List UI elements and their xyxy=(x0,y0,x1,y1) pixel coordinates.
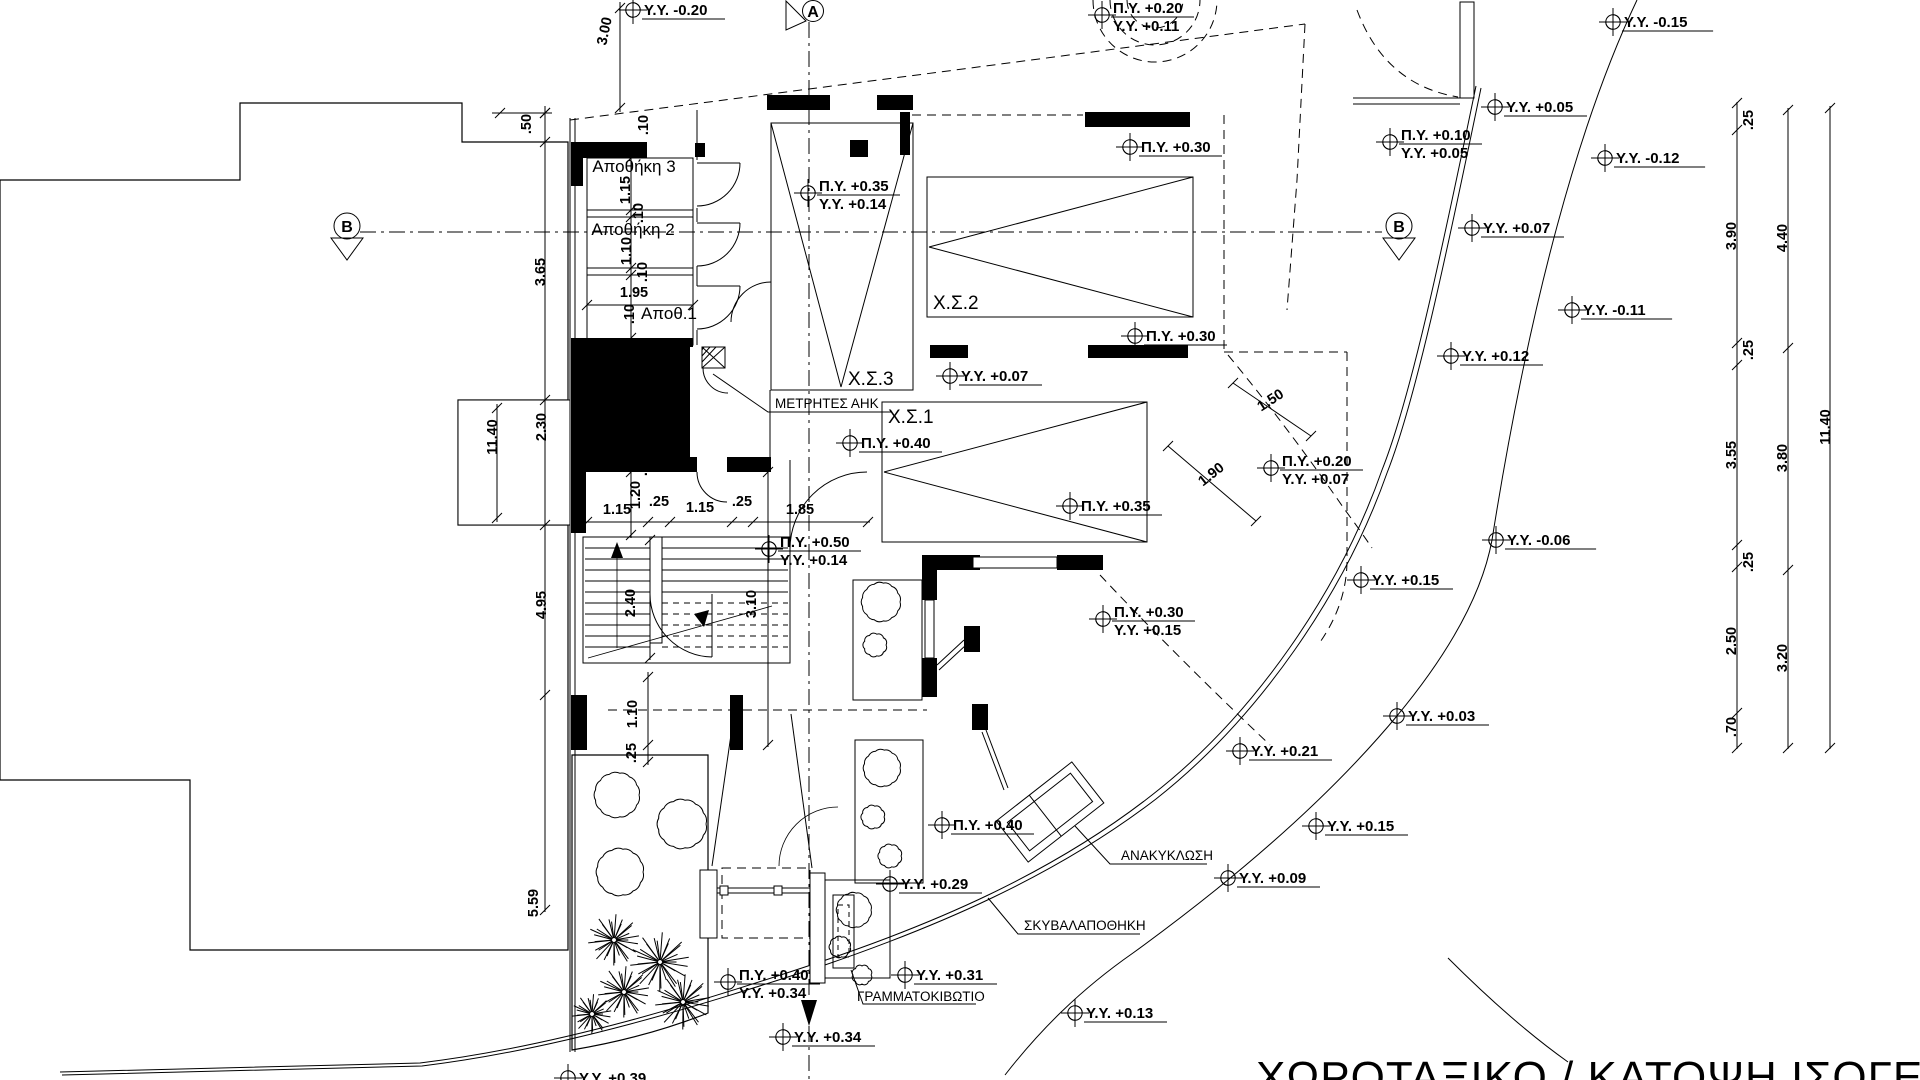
dimension-label: 11.40 xyxy=(1818,409,1834,445)
entrance-area xyxy=(700,374,1207,1004)
annotation-label: ΑΝΑΚΥΚΛΩΣΗ xyxy=(1121,848,1213,863)
elevation-value: Υ.Υ. +0.13 xyxy=(1086,1005,1153,1022)
grass-icon xyxy=(588,914,639,965)
elevation-value: Υ.Υ. +0.11 xyxy=(1113,18,1179,35)
dimension-label: 1.80 xyxy=(622,416,638,444)
elevation-value: Υ.Υ. -0.11 xyxy=(1583,302,1646,319)
elevation-marker: Υ.Υ. -0.15 xyxy=(1599,8,1713,36)
dimension-label: 3.65 xyxy=(533,258,549,286)
dimension-label: 1.10 xyxy=(619,237,635,265)
elevation-value: Υ.Υ. +0.21 xyxy=(1251,743,1318,760)
elevation-value: Π.Υ. +0.30 xyxy=(1146,328,1216,345)
elevation-value: Π.Υ. +0.40 xyxy=(861,435,931,452)
elevation-marker: Υ.Υ. +0.34 xyxy=(769,1023,875,1051)
dimension-label: 11.40 xyxy=(485,419,501,455)
elevation-value: Υ.Υ. +0.15 xyxy=(1327,818,1394,835)
grass-icon xyxy=(655,974,710,1029)
elevation-value: Υ.Υ. +0.05 xyxy=(1506,99,1573,116)
room-label: Χ.Σ.1 xyxy=(888,407,934,428)
step-dashed-1 xyxy=(1100,575,1270,745)
elevation-value: Υ.Υ. +0.07 xyxy=(961,368,1028,385)
dimension-label: 1.50 xyxy=(1255,386,1287,415)
planter-1 xyxy=(853,580,922,700)
elevation-value: Υ.Υ. +0.07 xyxy=(1483,220,1550,237)
elevation-marker: Π.Υ. +0.30Υ.Υ. +0.15 xyxy=(1089,604,1195,639)
dimension-label: 5.59 xyxy=(526,889,542,917)
elevation-value: Υ.Υ. +0.14 xyxy=(780,552,848,569)
room-label: Χ.Σ.2 xyxy=(933,293,979,314)
elevation-marker: Π.Υ. +0.30 xyxy=(1116,133,1222,161)
dimension-label: .25 xyxy=(1741,110,1757,130)
room-label: Αποθ.1 xyxy=(641,304,697,323)
tree-icon xyxy=(829,936,851,958)
elevation-value: Υ.Υ. +0.29 xyxy=(901,876,968,893)
elevation-value: Υ.Υ. +0.09 xyxy=(1239,870,1306,887)
elevation-value: Π.Υ. +0.35 xyxy=(819,178,889,195)
section-letter: A xyxy=(807,4,819,21)
elevation-value: Υ.Υ. +0.15 xyxy=(1114,622,1181,639)
dimension-label: .25 xyxy=(1741,340,1757,360)
dimension-label: .25 xyxy=(624,743,640,763)
meter-closet xyxy=(702,347,725,368)
elevation-marker: Υ.Υ. -0.06 xyxy=(1482,526,1596,554)
elevation-marker: Υ.Υ. +0.09 xyxy=(1214,864,1320,892)
dimension-label: 1.80 xyxy=(624,365,652,381)
elevation-value: Υ.Υ. +0.34 xyxy=(794,1029,862,1046)
elevation-marker: Υ.Υ. +0.15 xyxy=(1302,812,1408,840)
dimension-label: 2.40 xyxy=(623,589,639,617)
elevation-marker: Υ.Υ. +0.12 xyxy=(1437,342,1543,370)
dashed-boundaries xyxy=(570,24,1372,938)
elevation-marker: Π.Υ. +0.40 xyxy=(928,811,1034,839)
dimension-label: .10 xyxy=(636,115,652,135)
dimension-label: 1.85 xyxy=(786,502,814,518)
elevation-value: Π.Υ. +0.30 xyxy=(1141,139,1211,156)
elevation-value: Π.Υ. +0.20 xyxy=(1282,453,1352,470)
dimension-label: 1.90 xyxy=(1195,460,1227,490)
elevation-value: Π.Υ. +0.35 xyxy=(1081,498,1151,515)
dimension-label: .25 xyxy=(635,456,651,476)
elevation-marker: Υ.Υ. +0.03 xyxy=(1383,702,1489,730)
elevation-value: Υ.Υ. -0.15 xyxy=(1624,14,1687,31)
elevation-value: Υ.Υ. +0.34 xyxy=(739,985,807,1002)
elevation-value: Π.Υ. +0.30 xyxy=(1114,604,1184,621)
tree-icon xyxy=(861,805,885,829)
room-label: Αποθήκη 3 xyxy=(592,157,675,176)
dimension-label: .25 xyxy=(649,494,669,510)
room-label: Αποθήκη 2 xyxy=(591,220,674,239)
dimension-label: .10 xyxy=(635,262,651,282)
step-dashed-2 xyxy=(1228,355,1372,548)
dimension-label: .25 xyxy=(732,494,752,510)
dimension-label: .25 xyxy=(1741,552,1757,572)
dimension-label: .50 xyxy=(519,114,535,134)
elevation-value: Υ.Υ. +0.31 xyxy=(916,967,983,984)
dimension-label: 3.55 xyxy=(1724,441,1740,469)
annotation-label: ΣΚΥΒΑΛΑΠΟΘΗΚΗ xyxy=(1024,918,1146,933)
grass-icon xyxy=(572,994,611,1033)
elevation-marker: Π.Υ. +0.20Υ.Υ. +0.11 xyxy=(1088,0,1194,35)
dimension-label: .10 xyxy=(622,304,638,324)
elevation-value: Υ.Υ. +0.05 xyxy=(1401,145,1468,162)
dimension-box xyxy=(458,400,570,525)
dimension-label: 3.00 xyxy=(594,16,616,47)
section-marker: A xyxy=(786,1,824,31)
tree-icon xyxy=(657,799,706,849)
elevation-value: Υ.Υ. -0.20 xyxy=(644,2,707,19)
section-marker: B xyxy=(1383,213,1415,260)
elevation-marker: Υ.Υ. +0.07 xyxy=(1458,214,1564,242)
elevation-marker: Π.Υ. +0.10Υ.Υ. +0.05 xyxy=(1376,127,1482,162)
planter-2 xyxy=(855,740,923,883)
elevation-marker: Υ.Υ. +0.13 xyxy=(1061,999,1167,1027)
elevation-marker: Π.Υ. +0.40Υ.Υ. +0.34 xyxy=(714,967,820,1002)
tree-icon xyxy=(878,844,902,868)
dimension-label: 4.40 xyxy=(1775,224,1791,252)
gate-post-left xyxy=(700,870,717,938)
tree-icon xyxy=(594,772,639,818)
floor-plan-canvas: ABB Υ.Υ. -0.20Π.Υ. +0.20Υ.Υ. +0.11Υ.Υ. -… xyxy=(0,0,1920,1080)
elevation-value: Υ.Υ. +0.07 xyxy=(1282,471,1349,488)
elevation-marker: Υ.Υ. +0.31 xyxy=(891,961,997,989)
elevation-marker: Υ.Υ. -0.11 xyxy=(1558,296,1672,324)
dimension-label: 3.90 xyxy=(1724,222,1740,250)
dimension-label: 3.20 xyxy=(1775,644,1791,672)
elevation-marker: Π.Υ. +0.35Υ.Υ. +0.14 xyxy=(794,178,900,213)
elevation-value: Π.Υ. +0.50 xyxy=(780,534,850,551)
elevation-marker: Υ.Υ. +0.21 xyxy=(1226,737,1332,765)
dimension-label: 4.95 xyxy=(534,591,550,619)
gate-post-right xyxy=(810,873,825,983)
elevation-marker: Π.Υ. +0.20Υ.Υ. +0.07 xyxy=(1257,453,1363,488)
elevation-value: Υ.Υ. +0.15 xyxy=(1372,572,1439,589)
dimension-label: 1.15 xyxy=(603,502,631,518)
room-label: ΜΕΤΡΗΤΕΣ ΑΗΚ xyxy=(775,396,879,411)
elevation-value: Υ.Υ. -0.06 xyxy=(1507,532,1570,549)
elevation-value: Υ.Υ. +0.12 xyxy=(1462,348,1529,365)
elevation-marker: Υ.Υ. +0.07 xyxy=(936,362,1042,390)
elevation-value: Π.Υ. +0.40 xyxy=(739,967,809,984)
dimension-label: 2.50 xyxy=(1724,627,1740,655)
elevation-value: Π.Υ. +0.40 xyxy=(953,817,1023,834)
elevation-marker: Π.Υ. +0.50Υ.Υ. +0.14 xyxy=(755,534,861,569)
tree-icon xyxy=(863,633,887,657)
elevation-value: Π.Υ. +0.10 xyxy=(1401,127,1471,144)
elevation-value: Υ.Υ. +0.39 xyxy=(579,1070,646,1080)
elevation-marker: Υ.Υ. +0.05 xyxy=(1481,93,1587,121)
section-markers: ABB xyxy=(331,1,1415,261)
section-marker: B xyxy=(331,213,363,260)
dimension-label: 3.80 xyxy=(1775,444,1791,472)
elevation-marker: Υ.Υ. +0.29 xyxy=(876,870,982,898)
ramp-strip xyxy=(1460,2,1474,98)
dimension-label: 1.15 xyxy=(618,176,634,204)
road-edge-far xyxy=(1448,958,1568,1062)
recycle-enclosure xyxy=(996,762,1104,862)
tree-icon xyxy=(596,848,643,896)
dimension-label: .70 xyxy=(1724,717,1740,737)
elevation-value: Υ.Υ. +0.03 xyxy=(1408,708,1475,725)
tree-icon xyxy=(861,582,900,621)
dimension-label: 1.10 xyxy=(625,700,641,728)
annotation-label: ΓΡΑΜΜΑΤΟΚΙΒΩΤΙΟ xyxy=(857,989,985,1004)
grass-icon xyxy=(598,966,649,1017)
elevation-marker: Υ.Υ. +0.39 xyxy=(554,1064,660,1080)
existing-building-hatched xyxy=(0,103,570,950)
dimension-label: 1.15 xyxy=(686,500,714,516)
elevation-marker: Υ.Υ. +0.15 xyxy=(1347,566,1453,594)
drawing-title: ΧΩΡΟΤΑΞΙΚΟ / ΚΑΤΟΨΗ ΙΣΟΓΕΙΟΥ xyxy=(1256,1053,1920,1080)
section-letter: B xyxy=(1393,219,1405,236)
entry-dashed xyxy=(722,868,810,938)
tree-icon xyxy=(863,749,900,786)
section-letter: B xyxy=(341,219,353,236)
elevation-marker: Υ.Υ. -0.12 xyxy=(1591,144,1705,172)
dimension-label: 1.95 xyxy=(620,285,648,301)
dimension-label: 3.10 xyxy=(744,590,760,618)
elevation-marker: Υ.Υ. -0.20 xyxy=(619,0,725,24)
elevation-marker: Π.Υ. +0.35 xyxy=(1056,492,1162,520)
gate-swing-arc xyxy=(1357,10,1458,97)
elevation-marker: Π.Υ. +0.40 xyxy=(836,429,942,457)
elevation-value: Υ.Υ. -0.12 xyxy=(1616,150,1679,167)
elevation-value: Υ.Υ. +0.14 xyxy=(819,196,887,213)
dimension-label: 2.30 xyxy=(534,413,550,441)
elevation-value: Π.Υ. +0.20 xyxy=(1113,0,1183,17)
room-label: Χ.Σ.3 xyxy=(848,369,894,390)
